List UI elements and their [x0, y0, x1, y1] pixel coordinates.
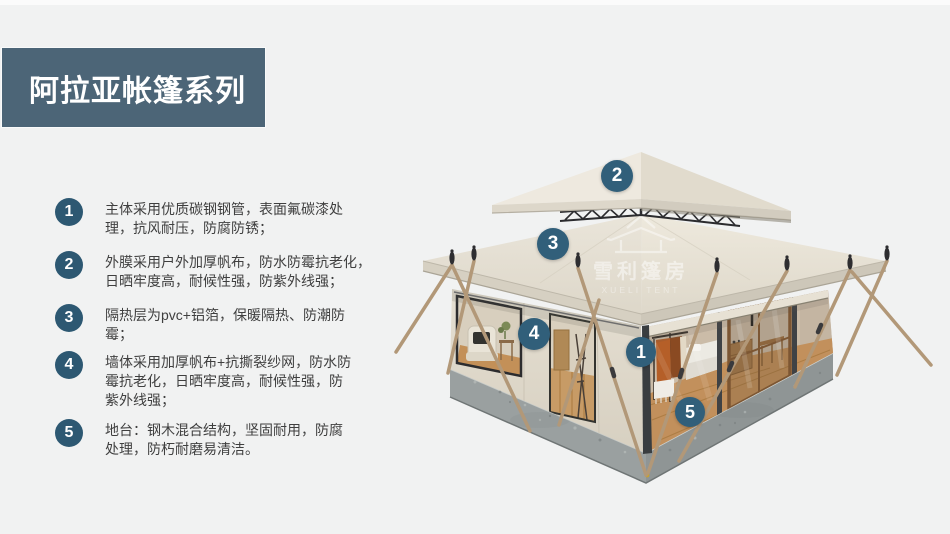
callout-badge-2: 2	[601, 160, 633, 192]
callout-badge-1: 1	[626, 337, 656, 367]
pole-finial	[471, 248, 476, 261]
support-pole	[396, 265, 452, 352]
feature-text-1: 主体采用优质碳钢钢管，表面氟碳漆处 理，抗风耐压，防腐防锈；	[105, 200, 387, 238]
pole-finial	[784, 258, 789, 271]
pole-connector	[818, 325, 821, 332]
pole-finial	[714, 260, 719, 273]
pole-connector	[680, 370, 682, 377]
pole-connector	[729, 363, 732, 370]
watermark-en: XUELI TENT	[602, 285, 681, 295]
callout-badge-4: 4	[518, 318, 550, 350]
tent-illustration: 雪利篷房 XUELI TENT	[390, 120, 950, 520]
watermark-cn: 雪利篷房	[593, 259, 689, 283]
callout-badge-5: 5	[675, 397, 705, 427]
feature-badge-3: 3	[55, 304, 83, 332]
feature-text-5: 地台：钢木混合结构，坚固耐用，防腐 处理，防朽耐磨易清洁。	[105, 421, 387, 459]
pole-finial	[575, 255, 580, 268]
page-root: { "header": { "title": "阿拉亚帐篷系列" }, "fea…	[0, 0, 950, 534]
feature-badge-5: 5	[55, 419, 83, 447]
pole-finial	[847, 257, 852, 270]
support-pole	[852, 272, 931, 365]
feature-text-4: 墙体采用加厚帆布+抗撕裂纱网，防水防 霉抗老化，日晒牢度高，耐候性强，防 紫外线…	[105, 353, 387, 410]
feature-text-2: 外膜采用户外加厚帆布，防水防霉抗老化， 日晒牢度高，耐候性强，防紫外线强；	[105, 253, 387, 291]
feature-text-3: 隔热层为pvc+铝箔，保暖隔热、防潮防 霉；	[105, 306, 387, 344]
top-strip	[0, 0, 950, 5]
pole-finial	[449, 252, 454, 265]
feature-item-1: 1 主体采用优质碳钢钢管，表面氟碳漆处 理，抗风耐压，防腐防锈；	[55, 198, 387, 238]
feature-item-5: 5 地台：钢木混合结构，坚固耐用，防腐 处理，防朽耐磨易清洁。	[55, 419, 387, 459]
feature-item-2: 2 外膜采用户外加厚帆布，防水防霉抗老化， 日晒牢度高，耐候性强，防紫外线强；	[55, 251, 387, 291]
title-banner: 阿拉亚帐篷系列	[2, 48, 265, 127]
callout-badge-3: 3	[537, 228, 569, 260]
feature-item-4: 4 墙体采用加厚帆布+抗撕裂纱网，防水防 霉抗老化，日晒牢度高，耐候性强，防 紫…	[55, 351, 387, 410]
page-title: 阿拉亚帐篷系列	[2, 66, 246, 110]
feature-item-3: 3 隔热层为pvc+铝箔，保暖隔热、防潮防 霉；	[55, 304, 387, 344]
feature-badge-1: 1	[55, 198, 83, 226]
pole-connector	[612, 369, 614, 376]
feature-badge-4: 4	[55, 351, 83, 379]
feature-badge-2: 2	[55, 251, 83, 279]
pole-finial	[884, 248, 889, 261]
